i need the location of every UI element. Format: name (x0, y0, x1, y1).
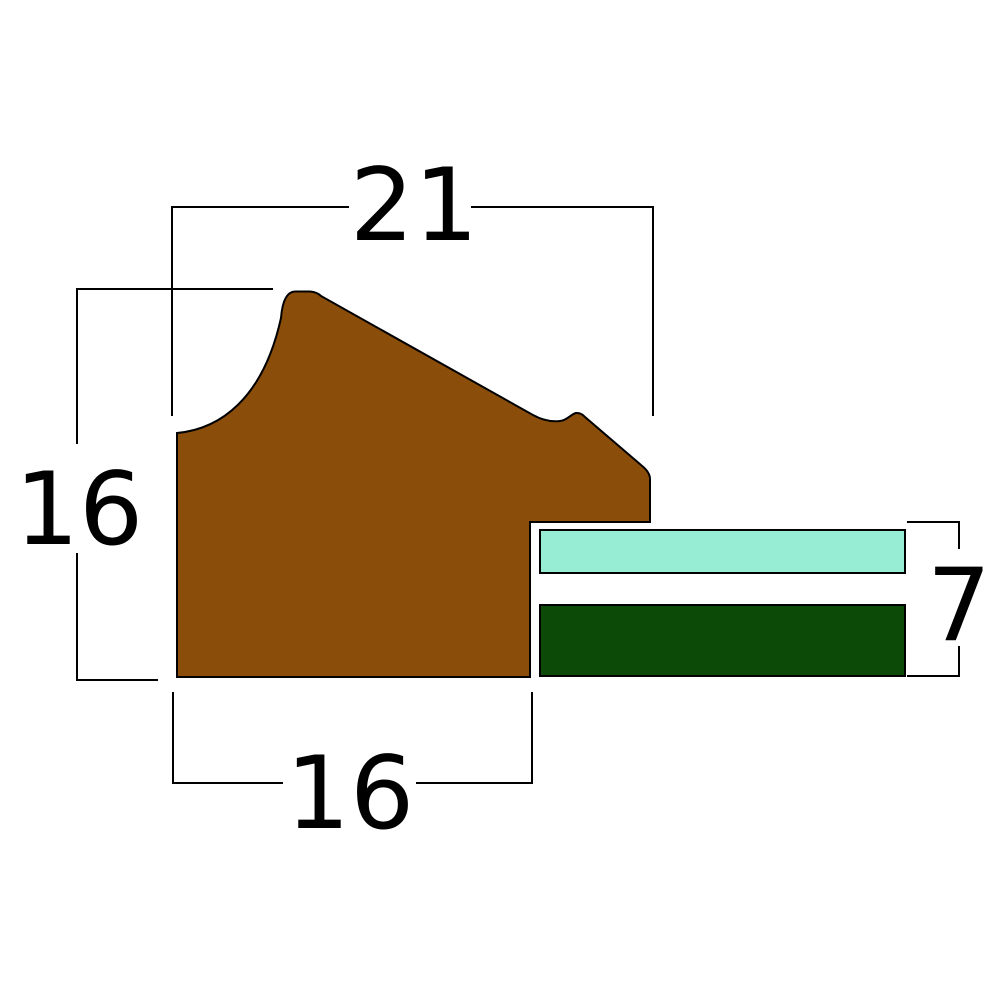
diagram-canvas: 21 16 16 7 (0, 0, 1000, 1000)
dimension-overall-height-label: 16 (15, 450, 144, 568)
backing-board (540, 605, 905, 676)
glazing-sheet (540, 530, 905, 573)
dimension-stack-height: 7 (908, 522, 991, 676)
moulding-profile-diagram: 21 16 16 7 (0, 0, 1000, 1000)
dimension-base-width-label: 16 (286, 734, 415, 852)
dimension-base-width: 16 (173, 693, 532, 852)
dimension-overall-width-label: 21 (350, 146, 479, 264)
shapes-layer (177, 292, 905, 678)
dimension-stack-height-label: 7 (927, 546, 991, 664)
